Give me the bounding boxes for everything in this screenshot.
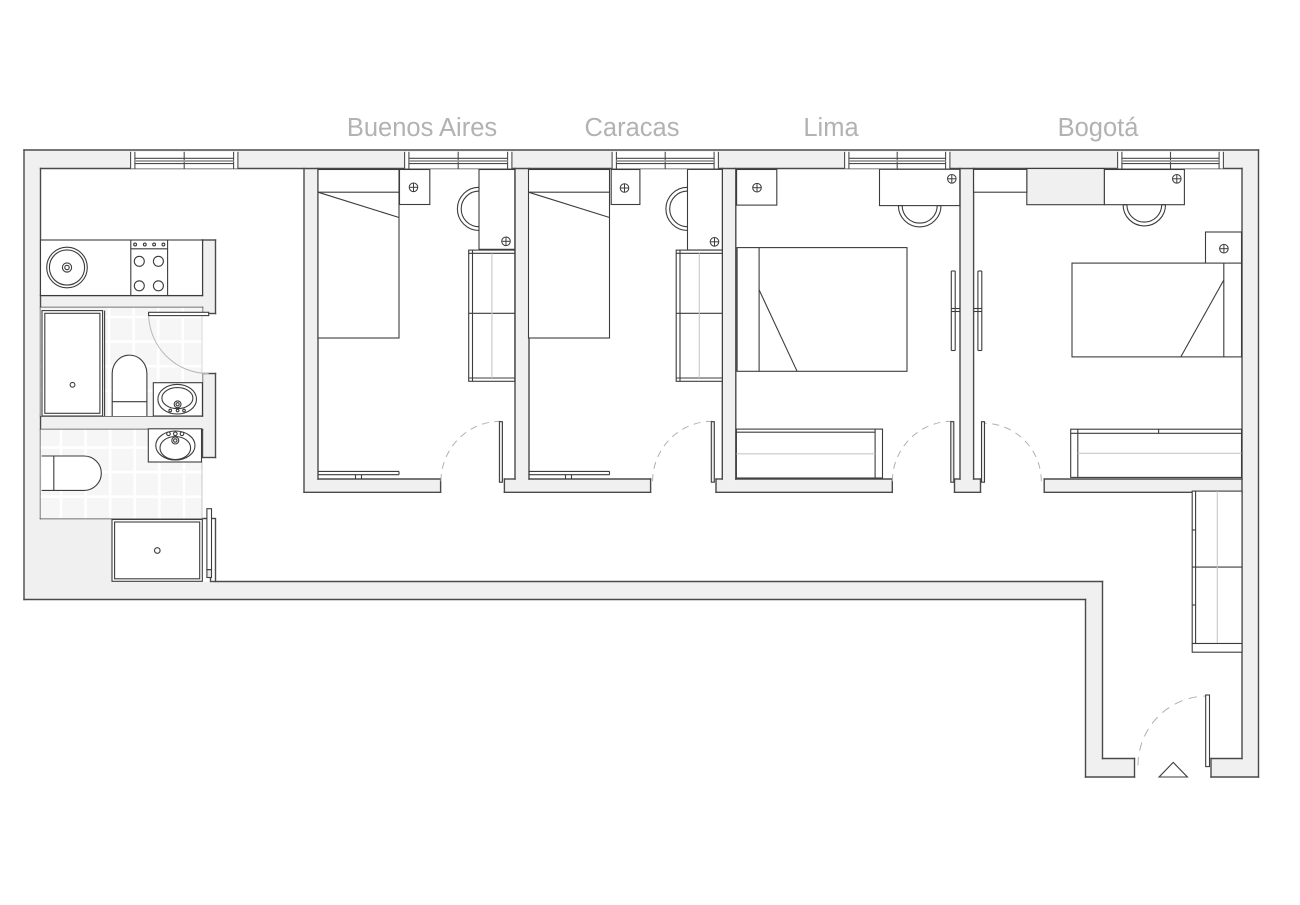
svg-text:Buenos Aires: Buenos Aires — [347, 114, 497, 142]
svg-text:Bogotá: Bogotá — [1058, 114, 1140, 142]
svg-text:Lima: Lima — [803, 114, 859, 142]
svg-text:Caracas: Caracas — [585, 114, 680, 142]
